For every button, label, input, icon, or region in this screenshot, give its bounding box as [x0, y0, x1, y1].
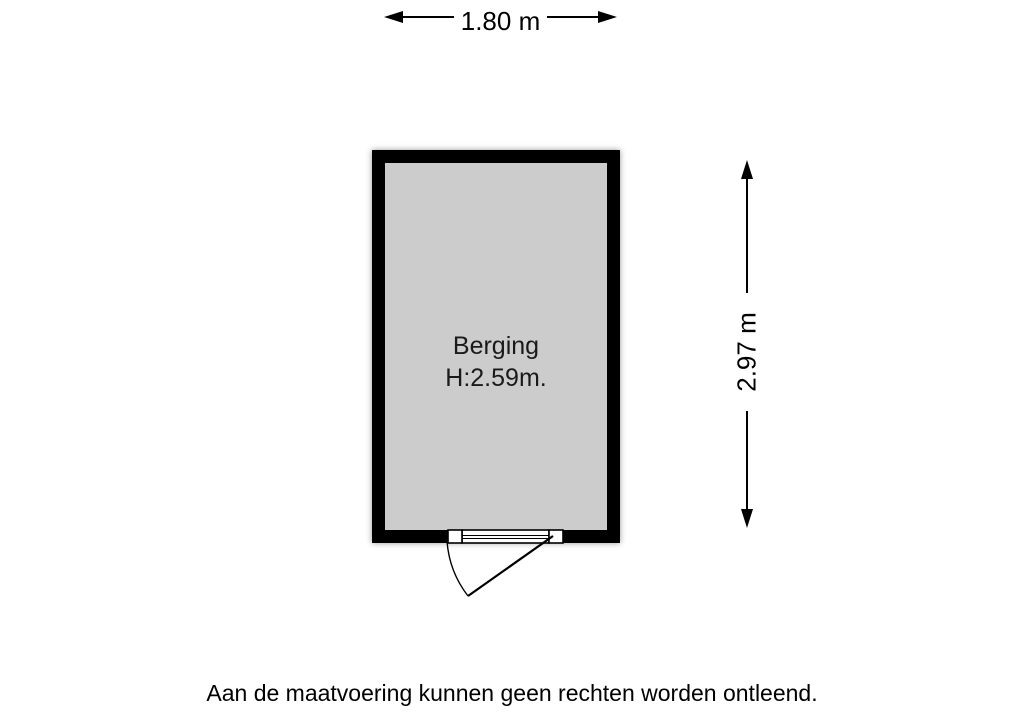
door-leaf: [468, 536, 553, 596]
disclaimer-text: Aan de maatvoering kunnen geen rechten w…: [0, 679, 1024, 707]
door: [0, 0, 1024, 724]
dimension-height-label-wrap: 2.97 m: [740, 293, 753, 411]
dimension-height: 2.97 m: [740, 160, 753, 528]
dimension-height-label: 2.97 m: [731, 312, 762, 392]
floorplan-canvas: 1.80 m Berging H:2.59m. 2.97 m Aan de ma…: [0, 0, 1024, 724]
arrow-down-icon: [741, 509, 753, 528]
dimension-height-line-bottom: [746, 411, 748, 509]
door-threshold: [462, 530, 549, 543]
dimension-height-line-top: [746, 179, 748, 293]
arrow-up-icon: [741, 160, 753, 179]
door-swing-arc: [447, 541, 468, 596]
door-jamb-left: [448, 530, 462, 543]
